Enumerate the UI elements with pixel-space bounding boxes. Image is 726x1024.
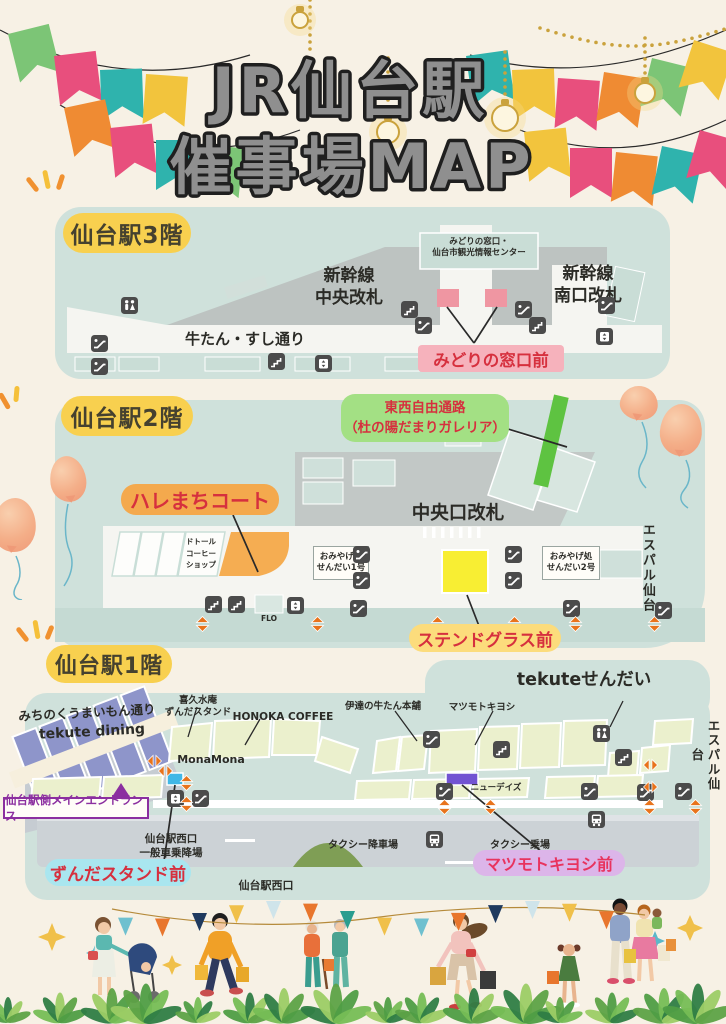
event-space-pink-1 — [437, 289, 459, 307]
updown-arrow-icon — [179, 796, 194, 812]
midori-info-center-label: みどりの窓口・ 仙台市観光情報センター — [417, 237, 541, 259]
flo-shop-label: FLO — [255, 614, 283, 624]
date-gyutan-honpo-label: 伊達の牛たん本舗 — [331, 701, 435, 713]
escalator-icon — [350, 600, 367, 617]
escalator-icon — [353, 572, 370, 589]
leftright-arrow-icon — [147, 753, 162, 769]
updown-arrow-icon — [568, 616, 583, 632]
tekute-sendai-label: tekuteせんだい — [503, 669, 665, 692]
elderly-couple — [304, 919, 348, 989]
west-exit-label: 仙台駅西口 — [217, 879, 315, 893]
elevator-icon — [315, 355, 332, 372]
poster-title: JR仙台駅 催事場MAP — [0, 0, 726, 210]
espal-sendai-label: エスパル仙台 — [638, 518, 655, 618]
restroom-icon — [593, 725, 610, 742]
escalator-icon — [515, 301, 532, 318]
stained-glass-front-label: ステンドグラス前 — [409, 624, 561, 652]
floor1-badge: 仙台駅1階 — [46, 645, 172, 683]
updown-arrow-icon — [688, 799, 703, 815]
girl-with-bag — [547, 944, 581, 1008]
escalator-icon — [505, 572, 522, 589]
omiyage-sendai2-label: おみやげ処 せんだい2号 — [542, 546, 600, 580]
newdays-label: ニューデイズ — [457, 783, 535, 794]
title-line1: JR仙台駅 — [208, 54, 489, 127]
tozai-corridor-label: 東西自由通路 （杜の陽だまりガレリア） — [341, 394, 509, 442]
updown-arrow-icon — [483, 799, 498, 815]
escalator-icon — [353, 546, 370, 563]
stairs-icon — [268, 353, 285, 370]
stairs-icon — [401, 301, 418, 318]
floor2-badge: 仙台駅2階 — [61, 396, 193, 436]
event-space-yellow — [442, 550, 488, 593]
elevator-icon — [596, 328, 613, 345]
west-exit-general-car-label: 仙台駅西口 一般車乗降場 — [105, 833, 237, 860]
escalator-icon — [436, 783, 453, 800]
man-with-shopping-bags — [195, 913, 249, 997]
floor3-badge: 仙台駅3階 — [63, 213, 191, 253]
leftright-arrow-icon — [643, 757, 658, 773]
updown-arrow-icon — [179, 775, 194, 791]
woman-with-bags — [430, 913, 496, 1010]
matsumotokiyoshi-label: マツモトキヨシ — [429, 702, 535, 714]
taxi-drop-off-label: タクシー降車場 — [307, 839, 419, 852]
updown-arrow-icon — [642, 799, 657, 815]
zunda-stand-front-label: ずんだスタンド前 — [45, 859, 191, 886]
speed-dash — [13, 386, 19, 402]
balloon-strings — [620, 420, 726, 510]
speed-dash — [0, 392, 11, 410]
star — [162, 955, 182, 975]
escalator-icon — [598, 297, 615, 314]
shinkansen-south-gate-label: 新幹線 南口改札 — [528, 263, 648, 307]
bus-icon — [588, 811, 605, 828]
escalator-icon — [192, 790, 209, 807]
speed-dash — [44, 625, 54, 641]
stairs-icon — [228, 596, 245, 613]
doutor-coffee-label: ドトール コーヒー ショップ — [177, 536, 225, 571]
leftright-arrow-icon — [643, 779, 658, 795]
elevator-icon — [287, 597, 304, 614]
floor2-map-panel: 仙台駅2階 東西自由通路 （杜の陽だまりガレリア） ハレまちコート 中央口改札 … — [55, 400, 705, 648]
restroom-icon — [121, 297, 138, 314]
stairs-icon — [529, 317, 546, 334]
escalator-icon — [91, 358, 108, 375]
gyutan-sushi-street-label: 牛たん・すし通り — [155, 330, 335, 350]
shinkansen-central-gate-label: 新幹線 中央改札 — [289, 265, 409, 309]
escalator-icon — [505, 546, 522, 563]
escalator-icon — [415, 317, 432, 334]
escalator-icon — [91, 335, 108, 352]
midori-window-front-label: みどりの窓口前 — [418, 345, 564, 372]
stairs-icon — [615, 749, 632, 766]
honoka-coffee-label: HONOKA COFFEE — [223, 711, 343, 725]
speed-dash — [32, 620, 40, 640]
updown-arrow-icon — [437, 799, 452, 815]
escalator-icon — [563, 600, 580, 617]
star — [38, 923, 66, 951]
stairs-icon — [205, 596, 222, 613]
main-entrance-label: 仙台駅側メインエントランス — [3, 797, 149, 819]
bus-icon — [426, 831, 443, 848]
updown-arrow-icon — [195, 616, 210, 632]
escalator-icon — [581, 783, 598, 800]
title-line2: 催事場MAP — [169, 130, 534, 203]
monamona-label: MonaMona — [165, 753, 257, 767]
speed-dash — [15, 626, 29, 642]
balloon-strings — [0, 500, 110, 600]
star — [677, 915, 703, 941]
espal-sendai-label: エスパル仙台 — [688, 713, 721, 798]
updown-arrow-icon — [647, 616, 662, 632]
stairs-icon — [493, 741, 510, 758]
bottom-illustration — [0, 893, 726, 1024]
event-map-poster: JR仙台駅 催事場MAP 仙台駅3階 みどりの窓口・ 仙 — [0, 0, 726, 1024]
updown-arrow-icon — [310, 616, 325, 632]
floor3-map-panel: 仙台駅3階 みどりの窓口・ 仙台市観光情報センター 新幹線 中央改札 新幹線 南… — [55, 207, 670, 379]
escalator-icon — [675, 783, 692, 800]
halemachi-court-label: ハレまちコート — [121, 484, 279, 515]
event-space-pink-2 — [485, 289, 507, 307]
floor1-map-panel: みちのくうまいもん通り tekute dining 喜久水庵 ずんだスタンド H… — [25, 693, 710, 900]
central-gate-label: 中央口改札 — [393, 502, 523, 526]
matsumotokiyoshi-front-label: マツモトキヨシ前 — [473, 850, 625, 876]
escalator-icon — [423, 731, 440, 748]
